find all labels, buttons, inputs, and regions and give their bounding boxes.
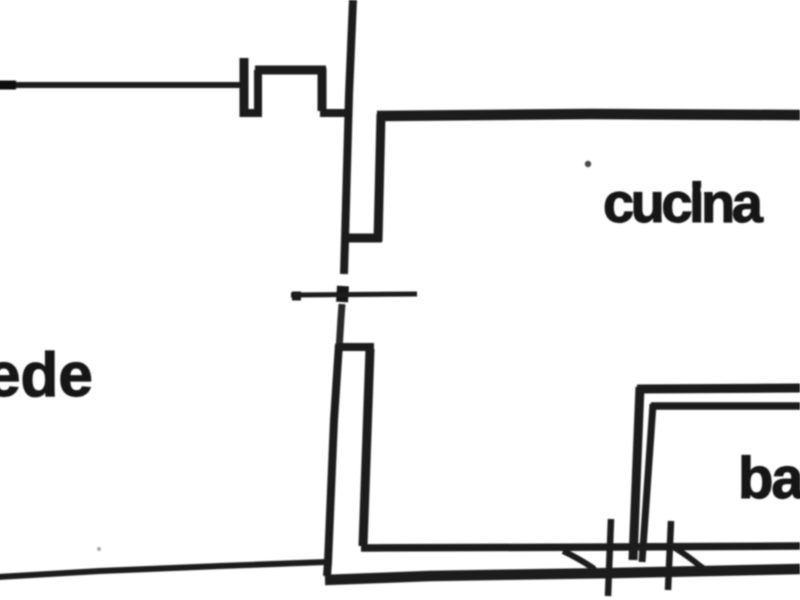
svg-text:cucina: cucina [603, 171, 764, 234]
svg-text:ede: ede [0, 341, 93, 410]
svg-text:ba: ba [738, 446, 800, 511]
